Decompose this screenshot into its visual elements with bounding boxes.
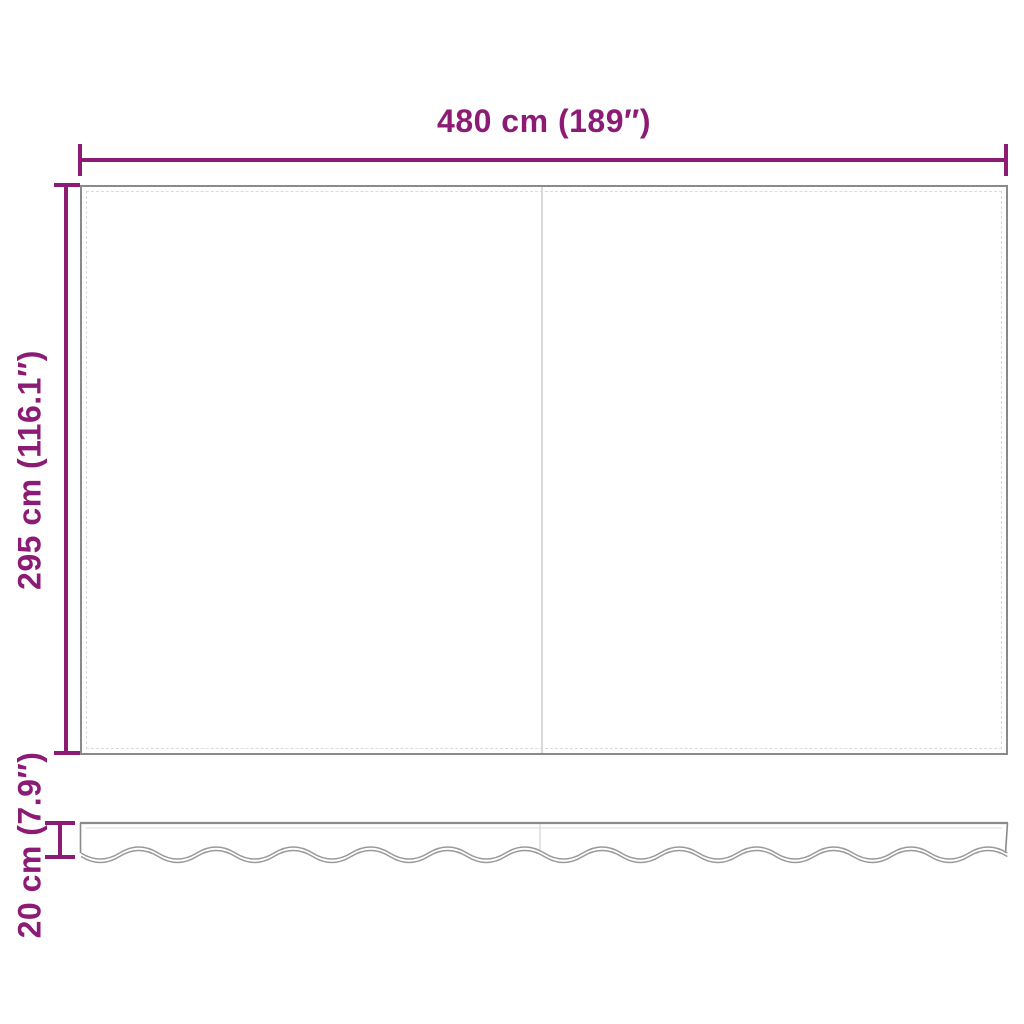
width-dimension-label: 480 cm (189″) [437, 103, 651, 140]
valance-height-dimension-tick-top [45, 821, 75, 825]
height-dimension-line [64, 185, 68, 755]
valance-strip [78, 820, 1012, 878]
valance-right-edge [1006, 823, 1008, 853]
valance-height-dimension-label: 20 cm (7.9″) [12, 752, 49, 939]
width-dimension-tick-left [78, 144, 82, 176]
panel-stitch-line [86, 191, 1002, 749]
valance-height-dimension-line [58, 823, 62, 857]
awning-fabric-dimension-diagram: 480 cm (189″) 295 cm (116.1″) 20 cm (7.9… [0, 0, 1024, 1024]
panel-seam-line [541, 187, 543, 753]
width-dimension-tick-right [1004, 144, 1008, 176]
height-dimension-label: 295 cm (116.1″) [12, 350, 49, 590]
height-dimension-tick-bottom [54, 751, 80, 755]
height-dimension-tick-top [54, 183, 80, 187]
valance-height-dimension-tick-bottom [45, 855, 75, 859]
fabric-panel [80, 185, 1008, 755]
width-dimension-line [80, 158, 1008, 162]
